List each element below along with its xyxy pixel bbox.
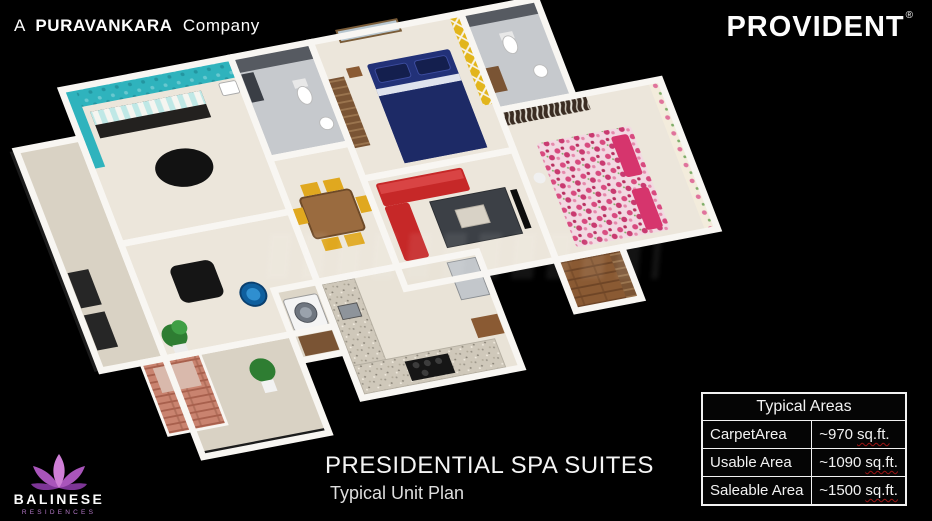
floorplan-render (0, 0, 799, 505)
puravankara-wordmark: PURAVANKARA (35, 16, 172, 35)
balinese-logo: BALINESE RESIDENCES (4, 454, 114, 516)
provident-logo: PROVIDENT® (726, 10, 914, 44)
floorplan-svg (0, 0, 799, 505)
company-prefix: A (14, 16, 25, 35)
area-label: Saleable Area (703, 477, 811, 504)
project-title-block: PRESIDENTIAL SPA SUITES Typical Unit Pla… (325, 452, 654, 504)
area-label: Usable Area (703, 449, 811, 476)
provident-wordmark: PROVIDENT (726, 11, 904, 43)
area-number: ~970 (819, 426, 853, 443)
company-attribution: A PURAVANKARA Company (14, 16, 260, 36)
area-number: ~1090 (819, 454, 861, 471)
area-unit: sq.ft. (865, 454, 898, 471)
area-label: CarpetArea (703, 421, 811, 448)
table-row: CarpetArea ~970sq.ft. (703, 421, 905, 449)
area-value: ~1500sq.ft. (811, 477, 905, 504)
table-row: Saleable Area ~1500sq.ft. (703, 477, 905, 504)
balinese-wordmark: BALINESE (4, 492, 114, 507)
area-unit: sq.ft. (857, 426, 890, 443)
area-value: ~970sq.ft. (811, 421, 905, 448)
areas-table-title: Typical Areas (703, 394, 905, 421)
area-number: ~1500 (819, 482, 861, 499)
area-value: ~1090sq.ft. (811, 449, 905, 476)
area-unit: sq.ft. (865, 482, 898, 499)
table-row: Usable Area ~1090sq.ft. (703, 449, 905, 477)
company-suffix: Company (183, 16, 260, 35)
project-title: PRESIDENTIAL SPA SUITES (325, 452, 654, 480)
balinese-tagline: RESIDENCES (4, 509, 114, 516)
lotus-flower-icon (31, 454, 87, 490)
typical-areas-table: Typical Areas CarpetArea ~970sq.ft. Usab… (701, 392, 907, 506)
registered-trademark-icon: ® (906, 10, 914, 21)
marketing-sheet: A PURAVANKARA Company PROVIDENT® (0, 0, 932, 521)
project-subtitle: Typical Unit Plan (330, 483, 654, 504)
